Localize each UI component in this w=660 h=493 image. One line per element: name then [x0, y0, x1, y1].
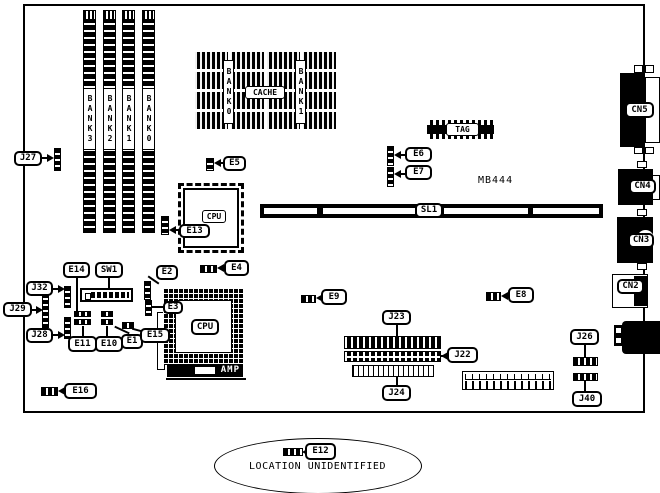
e15-callout: E15 — [140, 328, 170, 343]
keyboard-din-pin2 — [616, 338, 621, 343]
j27-jumper — [54, 148, 61, 171]
j40-callout: J40 — [572, 391, 602, 407]
cn5-tab-br — [645, 147, 654, 154]
cn4-tab — [637, 161, 647, 168]
cn5-tab-tl — [634, 65, 643, 73]
cn5-tab-bl — [634, 147, 643, 154]
e12-jumper — [283, 448, 303, 456]
qfp-cpu-label: CPU — [202, 210, 226, 223]
bank1-label: BANK1 — [122, 88, 135, 150]
keyboard-din-connector — [622, 321, 660, 354]
cn4-label: CN4 — [629, 179, 656, 194]
amp-socket-lever: AMP — [167, 364, 243, 377]
e8-callout: E8 — [508, 287, 534, 303]
e12-callout: E12 — [305, 443, 336, 460]
e14-leader — [76, 278, 78, 311]
amp-underline — [166, 378, 246, 380]
j32-arrow — [58, 285, 65, 293]
j29-arrow — [36, 306, 43, 314]
e4-arrow — [217, 264, 224, 272]
location-unidentified-text: LOCATION UNIDENTIFIED — [230, 462, 405, 472]
e14-callout: E14 — [63, 262, 90, 278]
j40-leader — [584, 381, 586, 391]
e4-jumper — [200, 265, 217, 273]
keyboard-din-pin1 — [616, 328, 621, 333]
e3-callout: E3 — [163, 301, 183, 314]
e10-jumper-a — [101, 311, 113, 317]
e5-callout: E5 — [223, 156, 246, 171]
e16-callout: E16 — [64, 383, 97, 399]
j24-callout: J24 — [382, 385, 411, 401]
j27-arrow — [47, 154, 54, 162]
j40-header — [573, 373, 598, 381]
j22-header — [344, 351, 441, 362]
e4-callout: E4 — [224, 260, 249, 276]
j23-callout: J23 — [382, 310, 411, 325]
j26-header — [573, 357, 598, 366]
j29-header — [42, 293, 49, 328]
cache-bank1-label: BANK1 — [295, 60, 306, 124]
power-connector — [462, 371, 554, 390]
amp-label: AMP — [221, 366, 240, 375]
board-model-note: MB444 — [478, 176, 513, 186]
j26-callout: J26 — [570, 329, 599, 345]
j28-callout: J28 — [26, 328, 53, 343]
e13-jumper — [161, 216, 169, 235]
e10-callout: E10 — [95, 336, 123, 352]
sw1-dip-switch — [80, 288, 133, 302]
e7-jumper — [387, 167, 394, 187]
bank0-label: BANK0 — [142, 88, 155, 150]
cache-label: CACHE — [245, 86, 285, 99]
cpu-socket-label: CPU — [191, 319, 219, 335]
bank2-label: BANK2 — [103, 88, 116, 150]
j29-callout: J29 — [3, 302, 32, 317]
tag-label: TAG — [446, 123, 479, 136]
e2-jumper — [144, 281, 151, 300]
e9-jumper — [301, 295, 316, 303]
e5-jumper — [206, 158, 214, 171]
bank3-label: BANK3 — [83, 88, 96, 150]
e13-callout: E13 — [179, 224, 210, 238]
motherboard-diagram: BANK3 BANK2 BANK1 BANK0 BANK0 BANK1 CACH… — [0, 0, 660, 493]
e6-jumper — [387, 146, 394, 166]
j26-leader — [584, 344, 586, 357]
j23-header — [344, 336, 441, 349]
e11-leader — [82, 326, 84, 336]
e2-callout: E2 — [156, 265, 178, 280]
j24-header — [352, 365, 434, 377]
cn5-tab-tr — [645, 65, 654, 73]
e11-callout: E11 — [68, 336, 97, 352]
e11-jumper-a — [74, 311, 91, 317]
sw1-callout: SW1 — [95, 262, 123, 278]
e11-jumper-b — [74, 319, 91, 325]
sw1-leader — [108, 278, 110, 288]
e7-callout: E7 — [405, 165, 432, 180]
j28-arrow — [58, 331, 65, 339]
j22-callout: J22 — [447, 347, 478, 363]
cn3-label: CN3 — [628, 233, 654, 248]
e6-callout: E6 — [405, 147, 432, 162]
j23-leader — [396, 325, 398, 336]
j32-header — [64, 286, 71, 308]
e8-jumper — [486, 292, 501, 301]
e16-jumper — [41, 387, 58, 396]
sl1-label: SL1 — [415, 203, 443, 218]
e10-leader — [106, 326, 108, 336]
e9-callout: E9 — [321, 289, 347, 305]
e10-jumper-b — [101, 319, 113, 325]
cn3-tab-bottom — [637, 263, 647, 270]
cn5-label: CN5 — [625, 102, 654, 118]
j32-callout: J32 — [26, 281, 53, 296]
e8-arrow — [501, 292, 508, 300]
e3-jumper — [145, 300, 152, 316]
cn3-tab-top — [637, 209, 647, 216]
cache-bank0-label: BANK0 — [223, 60, 234, 124]
j27-callout: J27 — [14, 151, 42, 166]
cn2-label: CN2 — [617, 279, 644, 294]
